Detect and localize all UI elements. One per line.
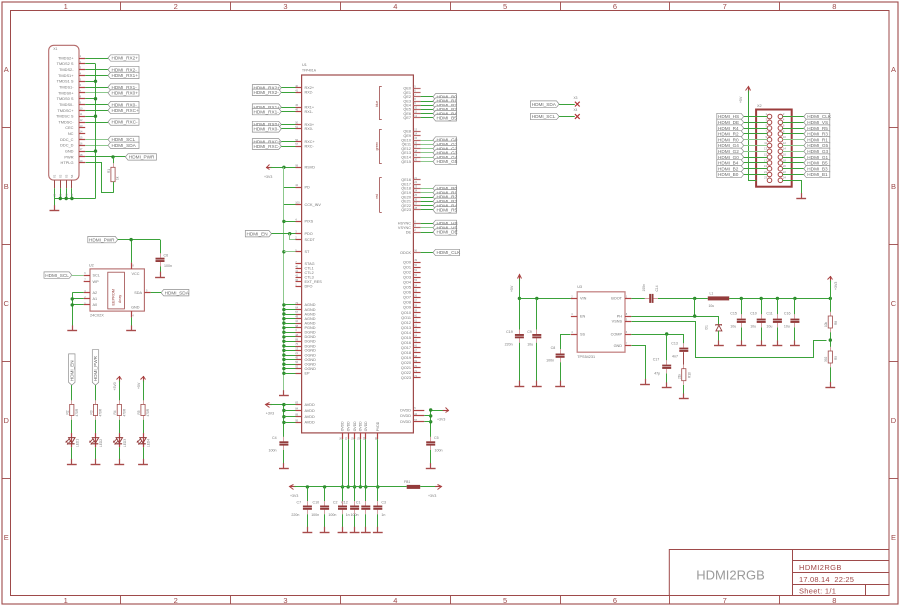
svg-text:A: A: [891, 65, 896, 74]
svg-text:470R: 470R: [75, 408, 79, 416]
svg-text:220n: 220n: [291, 513, 299, 517]
svg-text:OGND: OGND: [305, 349, 317, 353]
svg-text:EXT_RES: EXT_RES: [305, 280, 323, 284]
svg-text:AVDD: AVDD: [305, 409, 316, 413]
svg-text:X2: X2: [757, 104, 762, 108]
svg-text:HDMI_SDA: HDMI_SDA: [112, 143, 137, 148]
svg-text:QO17: QO17: [401, 346, 411, 350]
svg-text:QE7: QE7: [403, 116, 411, 120]
svg-text:100n: 100n: [435, 449, 443, 453]
svg-text:6: 6: [613, 2, 617, 11]
svg-text:C14: C14: [655, 285, 659, 291]
svg-text:QO7: QO7: [403, 296, 411, 300]
svg-text:R10: R10: [688, 372, 692, 378]
svg-text:CTL3: CTL3: [305, 276, 314, 280]
svg-text:C1: C1: [356, 501, 361, 505]
svg-text:HDMI_G2: HDMI_G2: [718, 149, 739, 154]
svg-text:C15: C15: [730, 311, 737, 315]
svg-text:Array: Array: [118, 295, 122, 303]
svg-text:WP: WP: [93, 280, 100, 284]
svg-text:QO16: QO16: [401, 341, 411, 345]
svg-text:HDMI_SCL: HDMI_SCL: [112, 137, 136, 142]
svg-text:HDMI_PWR: HDMI_PWR: [89, 237, 115, 242]
svg-text:C4: C4: [272, 436, 277, 440]
svg-text:470R: 470R: [99, 408, 103, 416]
svg-text:VIN: VIN: [580, 297, 587, 301]
svg-text:HDMI_VS: HDMI_VS: [807, 120, 828, 125]
svg-text:QO12: QO12: [401, 321, 411, 325]
svg-text:C6: C6: [164, 254, 169, 258]
svg-text:100n: 100n: [269, 449, 277, 453]
svg-text:10: 10: [783, 135, 786, 139]
svg-text:R8: R8: [834, 321, 838, 325]
svg-text:HDMI_G5: HDMI_G5: [437, 159, 458, 164]
svg-text:20: 20: [783, 164, 786, 168]
svg-text:AGND: AGND: [305, 303, 316, 307]
svg-text:1: 1: [64, 2, 68, 11]
svg-text:HDMI_G4: HDMI_G4: [718, 143, 739, 148]
svg-text:100n: 100n: [351, 513, 359, 517]
svg-text:HDMI_B3: HDMI_B3: [807, 166, 828, 171]
svg-text:HDMI_G0: HDMI_G0: [718, 155, 739, 160]
svg-text:HDMI_B5: HDMI_B5: [437, 116, 458, 121]
svg-text:HDMI_SDA: HDMI_SDA: [165, 290, 190, 295]
svg-text:DFO: DFO: [305, 285, 313, 289]
svg-text:10u: 10u: [730, 325, 736, 329]
svg-text:U3: U3: [577, 285, 582, 289]
svg-text:C19: C19: [506, 330, 513, 334]
svg-text:QO4: QO4: [403, 281, 411, 285]
svg-text:13: 13: [764, 147, 767, 151]
svg-text:red: red: [375, 194, 379, 199]
svg-text:HDMI_RX1+: HDMI_RX1+: [112, 73, 139, 78]
svg-text:RX0-: RX0-: [305, 127, 314, 131]
svg-text:HDMI_RX2-: HDMI_RX2-: [112, 67, 138, 72]
svg-text:LED4: LED4: [147, 439, 151, 447]
svg-text:SDA: SDA: [134, 291, 142, 295]
svg-text:HDMI_SCL: HDMI_SCL: [532, 114, 556, 119]
svg-text:B: B: [891, 182, 896, 191]
svg-text:E: E: [4, 533, 9, 542]
svg-text:C5: C5: [434, 436, 439, 440]
svg-text:QO23: QO23: [401, 376, 411, 380]
svg-text:HDMI_SCL: HDMI_SCL: [45, 273, 69, 278]
svg-text:18: 18: [783, 158, 786, 162]
svg-text:HDMI_DE: HDMI_DE: [437, 230, 458, 235]
svg-text:RX0+: RX0+: [305, 123, 315, 127]
svg-text:HDMI_R0: HDMI_R0: [718, 137, 739, 142]
svg-text:HDMI_G3: HDMI_G3: [807, 149, 828, 154]
svg-text:QE15: QE15: [401, 160, 411, 164]
svg-text:R2: R2: [66, 410, 70, 414]
svg-text:R3: R3: [89, 410, 93, 414]
svg-text:HDMI_RX0-: HDMI_RX0-: [112, 102, 138, 107]
svg-text:TMDS0+: TMDS0+: [58, 90, 74, 95]
svg-text:ODCK: ODCK: [400, 251, 411, 255]
svg-text:OVDD: OVDD: [359, 421, 363, 431]
svg-text:23: 23: [764, 176, 767, 180]
svg-text:FB1: FB1: [404, 480, 410, 484]
svg-text:47p: 47p: [654, 371, 660, 375]
svg-text:QO3: QO3: [403, 276, 411, 280]
svg-text:QE23: QE23: [401, 208, 411, 212]
svg-text:100n: 100n: [328, 513, 336, 517]
svg-text:3: 3: [283, 2, 287, 11]
svg-text:HDMI_R1: HDMI_R1: [807, 137, 828, 142]
svg-text:HDMI_HS: HDMI_HS: [718, 114, 739, 119]
svg-text:HDMI_R4: HDMI_R4: [718, 126, 739, 131]
svg-text:OGND: OGND: [305, 353, 317, 357]
svg-text:QO8: QO8: [403, 301, 411, 305]
svg-text:HDMI_RX2-: HDMI_RX2-: [254, 90, 280, 95]
svg-text:EEPROM: EEPROM: [112, 289, 116, 305]
svg-text:+3V3: +3V3: [834, 282, 838, 290]
svg-text:QO2: QO2: [403, 271, 411, 275]
svg-text:C2: C2: [333, 501, 338, 505]
svg-text:HDMI_RXC+: HDMI_RXC+: [112, 108, 139, 113]
svg-text:+5V: +5V: [137, 382, 141, 389]
svg-text:DDC_C: DDC_C: [60, 137, 74, 142]
svg-text:3: 3: [283, 596, 287, 605]
svg-text:OGND: OGND: [305, 367, 317, 371]
svg-text:HDMI_RX0-: HDMI_RX0-: [254, 127, 280, 132]
svg-text:AGND: AGND: [305, 308, 316, 312]
svg-text:C11: C11: [766, 311, 772, 315]
svg-text:HDMI_CLK: HDMI_CLK: [437, 250, 462, 255]
svg-text:TFP401A: TFP401A: [302, 68, 317, 72]
svg-text:BOOT: BOOT: [611, 297, 622, 301]
svg-text:CCK_INV: CCK_INV: [305, 203, 322, 207]
svg-text:1n: 1n: [381, 513, 385, 517]
svg-text:DGND: DGND: [305, 335, 316, 339]
svg-text:RSVD: RSVD: [305, 166, 316, 170]
svg-text:HDMI_B5: HDMI_B5: [807, 161, 828, 166]
svg-text:100n: 100n: [546, 359, 554, 363]
svg-text:HDMI_RX2+: HDMI_RX2+: [112, 56, 139, 61]
svg-text:D: D: [891, 416, 897, 425]
svg-text:PVDD: PVDD: [376, 421, 380, 431]
svg-text:TMDS2-: TMDS2-: [59, 67, 74, 72]
svg-text:TMDSC S: TMDSC S: [56, 114, 74, 119]
svg-text:AGND: AGND: [305, 312, 316, 316]
svg-text:TMDS0-: TMDS0-: [59, 102, 74, 107]
svg-text:392: 392: [824, 356, 828, 362]
svg-text:+3V3: +3V3: [264, 175, 272, 179]
svg-text:HDMI2RGB: HDMI2RGB: [799, 563, 842, 572]
svg-text:4: 4: [393, 2, 397, 11]
svg-text:RXC-: RXC-: [305, 145, 315, 149]
svg-text:HDMI_R5: HDMI_R5: [807, 126, 828, 131]
svg-text:R1: R1: [107, 169, 111, 173]
svg-text:+5V: +5V: [510, 285, 514, 292]
svg-text:14: 14: [783, 147, 786, 151]
svg-text:2: 2: [174, 596, 178, 605]
svg-text:EP: EP: [305, 372, 311, 376]
svg-text:470R: 470R: [123, 408, 127, 416]
svg-text:+3V3: +3V3: [437, 417, 445, 421]
svg-text:OGND: OGND: [305, 363, 317, 367]
svg-text:HDMI_RX0+: HDMI_RX0+: [112, 91, 139, 96]
svg-text:470R: 470R: [146, 408, 150, 416]
svg-text:HDMI_B1: HDMI_B1: [807, 172, 828, 177]
svg-text:100n: 100n: [164, 264, 172, 268]
svg-text:C3: C3: [381, 501, 386, 505]
svg-text:HDMI_RXC-: HDMI_RXC-: [254, 144, 280, 149]
svg-text:DVDD: DVDD: [400, 408, 411, 412]
svg-text:GND: GND: [131, 305, 140, 309]
svg-text:S4: S4: [70, 174, 74, 178]
svg-text:5: 5: [503, 596, 507, 605]
svg-text:+3V3: +3V3: [428, 494, 436, 498]
svg-text:1: 1: [64, 596, 68, 605]
svg-text:GND: GND: [65, 149, 74, 154]
svg-text:L1: L1: [710, 292, 714, 296]
svg-text:+3V3: +3V3: [113, 382, 117, 390]
svg-text:NC: NC: [68, 131, 74, 136]
svg-text:AVDD: AVDD: [305, 403, 316, 407]
svg-text:HDMI_RX1-: HDMI_RX1-: [112, 85, 138, 90]
svg-text:16: 16: [783, 153, 786, 157]
svg-text:C9: C9: [527, 330, 532, 334]
svg-text:X3: X3: [574, 96, 578, 100]
svg-text:S1: S1: [53, 174, 57, 178]
svg-text:EN: EN: [580, 315, 586, 319]
svg-text:10u: 10u: [750, 325, 756, 329]
svg-text:C17: C17: [653, 358, 660, 362]
svg-text:STAG: STAG: [305, 262, 315, 266]
svg-text:220n: 220n: [505, 343, 513, 347]
svg-text:HDMI_B2: HDMI_B2: [718, 166, 739, 171]
svg-text:RX2+: RX2+: [305, 86, 315, 90]
svg-text:TMDS2+: TMDS2+: [58, 55, 74, 60]
svg-text:TMDS1-: TMDS1-: [59, 85, 74, 90]
svg-text:S2: S2: [59, 174, 63, 178]
svg-text:QO14: QO14: [401, 331, 411, 335]
svg-text:QO15: QO15: [401, 336, 411, 340]
svg-text:S3: S3: [65, 174, 69, 178]
svg-text:LED2: LED2: [99, 439, 103, 447]
svg-text:8: 8: [832, 596, 836, 605]
svg-text:TMDSC+: TMDSC+: [57, 108, 74, 113]
svg-text:D1: D1: [705, 325, 709, 329]
svg-text:5: 5: [503, 2, 507, 11]
svg-text:QO11: QO11: [401, 316, 411, 320]
svg-text:QO19: QO19: [401, 356, 411, 360]
svg-text:AVDD: AVDD: [305, 421, 316, 425]
svg-text:QO5: QO5: [403, 286, 411, 290]
svg-text:24C02X: 24C02X: [90, 314, 104, 318]
svg-text:24: 24: [783, 176, 786, 180]
svg-text:HDMI_G1: HDMI_G1: [807, 155, 828, 160]
svg-text:QO13: QO13: [401, 326, 411, 330]
svg-text:green: green: [375, 142, 379, 151]
svg-text:DGND: DGND: [305, 340, 316, 344]
svg-text:+3V3: +3V3: [290, 494, 298, 498]
svg-text:+5V: +5V: [739, 96, 743, 103]
svg-text:VSNS: VSNS: [612, 320, 623, 324]
svg-text:HDMI_R3: HDMI_R3: [807, 132, 828, 137]
svg-text:15: 15: [764, 153, 767, 157]
svg-text:AVDD: AVDD: [305, 415, 316, 419]
svg-text:C: C: [3, 299, 9, 308]
svg-text:PD: PD: [305, 185, 311, 189]
svg-text:COMP: COMP: [611, 332, 623, 336]
svg-text:DGND: DGND: [305, 331, 316, 335]
svg-text:HDMI_G5: HDMI_G5: [807, 143, 828, 148]
svg-text:2: 2: [174, 2, 178, 11]
svg-text:DGND: DGND: [305, 344, 316, 348]
svg-text:VCC: VCC: [131, 272, 139, 276]
svg-text:100n: 100n: [311, 513, 319, 517]
svg-text:HDMI_CLK: HDMI_CLK: [807, 114, 832, 119]
svg-text:HDMI_RX1-: HDMI_RX1-: [254, 109, 280, 114]
svg-text:TMDSC-: TMDSC-: [58, 119, 74, 124]
svg-text:blue: blue: [375, 101, 379, 108]
svg-text:HDMI_B4: HDMI_B4: [718, 161, 739, 166]
svg-text:LED3: LED3: [123, 439, 127, 447]
svg-text:QO6: QO6: [403, 291, 411, 295]
svg-text:TMDS1+: TMDS1+: [58, 73, 74, 78]
svg-text:7: 7: [723, 596, 727, 605]
svg-text:TPS54231: TPS54231: [577, 355, 595, 359]
svg-text:100n: 100n: [642, 284, 646, 292]
svg-text:100: 100: [295, 201, 300, 205]
svg-text:A: A: [4, 65, 9, 74]
svg-text:19: 19: [764, 164, 767, 168]
svg-text:12: 12: [783, 141, 786, 145]
svg-text:Sheet: 1/1: Sheet: 1/1: [799, 586, 836, 595]
svg-text:10k: 10k: [824, 321, 828, 327]
svg-text:R4: R4: [113, 410, 117, 414]
svg-text:X4: X4: [574, 108, 578, 112]
svg-text:DVDD: DVDD: [400, 414, 411, 418]
svg-text:RX1-: RX1-: [305, 110, 314, 114]
svg-text:SCL: SCL: [93, 273, 100, 277]
svg-text:22: 22: [783, 170, 786, 174]
svg-text:+3V3: +3V3: [266, 412, 274, 416]
svg-text:U2: U2: [89, 263, 94, 267]
svg-text:HDMI_EN: HDMI_EN: [247, 231, 268, 236]
svg-text:PGND: PGND: [305, 326, 316, 330]
svg-text:4n7: 4n7: [672, 354, 678, 358]
svg-text:R5: R5: [137, 410, 141, 414]
svg-text:TMDS1 S: TMDS1 S: [57, 79, 74, 84]
svg-text:OGND: OGND: [305, 358, 317, 362]
svg-text:TMDS2 S: TMDS2 S: [57, 61, 74, 66]
svg-text:1k: 1k: [116, 176, 120, 180]
svg-text:C13: C13: [671, 342, 678, 346]
svg-text:RX1+: RX1+: [305, 105, 315, 109]
svg-text:U1: U1: [302, 63, 307, 67]
svg-text:10u: 10u: [766, 325, 772, 329]
svg-text:C12: C12: [341, 501, 348, 505]
svg-text:HDMI_DE: HDMI_DE: [718, 120, 739, 125]
svg-text:C: C: [891, 299, 897, 308]
svg-text:HDMI_PWR: HDMI_PWR: [93, 355, 98, 381]
svg-text:QO10: QO10: [401, 311, 411, 315]
svg-text:CTL1: CTL1: [305, 267, 314, 271]
svg-text:HDMI_B0: HDMI_B0: [718, 172, 739, 177]
svg-text:C8: C8: [551, 346, 556, 350]
svg-text:1n: 1n: [346, 513, 350, 517]
svg-text:HDMI_PWR: HDMI_PWR: [129, 155, 155, 160]
svg-text:21: 21: [764, 170, 767, 174]
svg-text:QO22: QO22: [401, 371, 411, 375]
svg-text:DDC_D: DDC_D: [60, 143, 74, 148]
svg-text:GND: GND: [614, 344, 623, 348]
svg-text:4: 4: [393, 596, 397, 605]
svg-text:D: D: [3, 416, 9, 425]
svg-text:HDMI2RGB: HDMI2RGB: [696, 568, 765, 583]
svg-text:A0: A0: [93, 303, 98, 307]
svg-text:CTL2: CTL2: [305, 271, 314, 275]
svg-text:C10: C10: [750, 311, 757, 315]
svg-text:QO18: QO18: [401, 351, 411, 355]
svg-text:HDMI_R2: HDMI_R2: [718, 132, 739, 137]
svg-text:OVDD: OVDD: [341, 421, 345, 431]
svg-text:PIXS: PIXS: [305, 220, 314, 224]
svg-text:TMDS0 S: TMDS0 S: [57, 96, 74, 101]
svg-text:RXC+: RXC+: [305, 140, 316, 144]
svg-text:E: E: [891, 533, 896, 542]
svg-text:QO21: QO21: [401, 366, 411, 370]
svg-text:C16: C16: [784, 311, 791, 315]
svg-text:OVDD: OVDD: [364, 421, 368, 431]
svg-text:QO1: QO1: [403, 265, 411, 269]
svg-text:CEC: CEC: [65, 125, 73, 130]
svg-text:DVDD: DVDD: [400, 420, 411, 424]
svg-text:R9: R9: [834, 356, 838, 360]
svg-text:HDMI_SDA: HDMI_SDA: [532, 102, 557, 107]
svg-text:10u: 10u: [784, 325, 790, 329]
svg-text:21k: 21k: [678, 373, 682, 379]
svg-text:AGND: AGND: [305, 317, 316, 321]
svg-text:HDMI_RXC-: HDMI_RXC-: [112, 120, 138, 125]
svg-text:OVDD: OVDD: [346, 421, 350, 431]
svg-text:6: 6: [613, 596, 617, 605]
svg-text:LED1: LED1: [75, 439, 79, 447]
svg-text:10u: 10u: [527, 343, 533, 347]
svg-text:RX2-: RX2-: [305, 91, 314, 95]
svg-text:10u: 10u: [709, 304, 715, 308]
svg-text:7: 7: [723, 2, 727, 11]
svg-text:17: 17: [764, 158, 767, 162]
svg-text:B: B: [4, 182, 9, 191]
svg-text:OVDD: OVDD: [353, 421, 357, 431]
svg-text:QO9: QO9: [403, 306, 411, 310]
svg-text:HDMI_R5: HDMI_R5: [437, 208, 458, 213]
svg-text:C7: C7: [297, 501, 302, 505]
svg-text:PH: PH: [617, 314, 623, 318]
svg-text:SS: SS: [580, 332, 586, 336]
svg-text:AGND: AGND: [305, 321, 316, 325]
svg-text:HTPLG: HTPLG: [61, 160, 74, 165]
svg-text:8: 8: [832, 2, 836, 11]
svg-text:ST: ST: [305, 250, 311, 254]
svg-text:QO0: QO0: [403, 260, 411, 264]
svg-text:17.08.14 22:25: 17.08.14 22:25: [799, 575, 854, 584]
svg-text:PDO: PDO: [305, 232, 313, 236]
svg-text:PWR: PWR: [64, 154, 73, 159]
svg-text:A2: A2: [93, 291, 98, 295]
svg-text:X1: X1: [53, 47, 57, 51]
svg-text:HDMI_EN: HDMI_EN: [70, 360, 75, 381]
svg-text:C10: C10: [313, 501, 320, 505]
svg-text:QO20: QO20: [401, 361, 411, 365]
svg-text:DE: DE: [406, 230, 412, 234]
svg-text:SCDT: SCDT: [305, 238, 316, 242]
svg-text:A1: A1: [93, 297, 98, 301]
